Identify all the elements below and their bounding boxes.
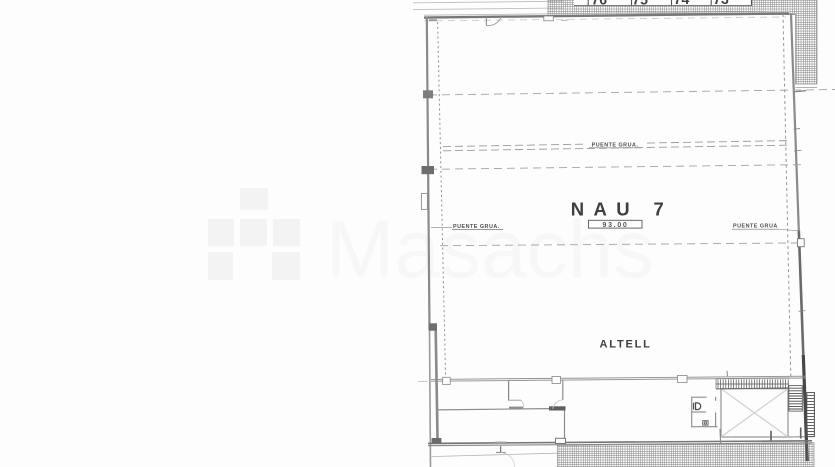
svg-text:ALTELL: ALTELL (600, 339, 652, 351)
svg-text:76: 76 (591, 0, 607, 8)
svg-text:73: 73 (713, 0, 729, 7)
svg-text:PUENTE GRUA: PUENTE GRUA (733, 223, 778, 229)
svg-text:75: 75 (632, 0, 648, 7)
svg-text:74: 74 (674, 0, 690, 7)
svg-text:93.00: 93.00 (602, 222, 628, 229)
svg-text:NAU 7: NAU 7 (571, 199, 674, 220)
svg-text:PUENTE GRUA.: PUENTE GRUA. (453, 224, 500, 230)
